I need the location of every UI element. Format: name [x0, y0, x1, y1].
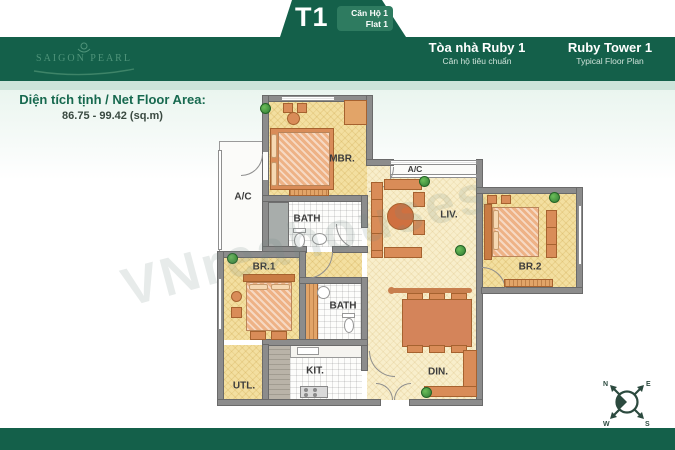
window	[218, 278, 222, 330]
br2-mattress	[492, 207, 539, 257]
wall	[218, 400, 380, 405]
balcony-door-opening	[263, 152, 268, 180]
bath2-sink	[317, 286, 330, 299]
liv-round-table	[387, 203, 414, 230]
toilet-bowl	[344, 318, 354, 333]
liv-sofa-top	[384, 179, 422, 190]
br1-pillow	[249, 284, 268, 290]
room-label-din: DIN.	[428, 367, 448, 378]
footer-bar	[0, 428, 675, 450]
din-table	[402, 299, 472, 347]
br1-side-chair	[231, 307, 242, 318]
building-title-en-text: Ruby Tower 1	[537, 40, 675, 55]
kitchen-gray-floor	[268, 345, 290, 400]
liv-sofa-left	[371, 182, 383, 258]
window	[390, 174, 477, 178]
window	[218, 150, 222, 250]
compass-w: W	[603, 421, 610, 426]
unit-name-vi: Căn Hộ 1	[337, 8, 388, 19]
room-label-utl: UTL.	[233, 381, 255, 392]
wall	[362, 196, 367, 227]
net-floor-area-value: 86.75 - 99.42 (sq.m)	[10, 110, 215, 122]
wall	[263, 196, 367, 201]
plant-icon	[419, 176, 430, 187]
wall	[263, 345, 268, 405]
window	[281, 96, 335, 101]
room-label-bath2: BATH	[329, 301, 356, 312]
room-label-liv: LIV.	[440, 210, 457, 221]
stove-burners	[304, 388, 308, 392]
room-label-mbr: MBR.	[329, 154, 355, 165]
mbr-pillow	[271, 162, 277, 186]
liv-sofa-bottom	[384, 247, 422, 258]
unit-name-pill: Căn Hộ 1 Flat 1	[337, 6, 393, 31]
compass-s: S	[645, 421, 650, 426]
mbr-desk	[344, 100, 367, 125]
kitchen-sink	[297, 347, 319, 355]
wall	[477, 188, 582, 193]
building-title-vi-text: Tòa nhà Ruby 1	[402, 40, 552, 55]
wall	[300, 278, 367, 283]
plant-icon	[549, 192, 560, 203]
br2-headboard	[484, 204, 492, 260]
floor-plan-page: T1 Căn Hộ 1 Flat 1 SAIGON PEARL Tòa nhà …	[0, 0, 675, 450]
plant-icon	[455, 245, 466, 256]
net-floor-area-label: Diện tích tịnh / Net Floor Area:	[10, 92, 215, 107]
plant-icon	[260, 103, 271, 114]
mbr-side-table	[287, 112, 300, 125]
br2-pillow	[493, 231, 499, 250]
mbr-mattress	[278, 132, 330, 186]
din-chair	[429, 345, 445, 353]
saigon-pearl-logo: SAIGON PEARL	[26, 41, 142, 79]
wall	[362, 278, 367, 370]
br2-pillow	[493, 210, 499, 229]
mbr-chair	[297, 103, 307, 113]
br2-chair	[501, 195, 511, 204]
din-chair	[407, 345, 423, 353]
din-console-knob	[388, 287, 395, 294]
liv-armchair	[413, 220, 425, 235]
shower-stall	[268, 202, 289, 247]
br1-ottoman	[271, 331, 287, 340]
plant-icon	[421, 387, 432, 398]
wall	[263, 340, 367, 345]
room-label-bath1: BATH	[293, 214, 320, 225]
wall	[300, 252, 305, 345]
unit-code: T1	[295, 2, 329, 33]
toilet-bowl	[294, 233, 305, 248]
wall	[367, 96, 372, 165]
building-title-vi: Tòa nhà Ruby 1 Căn hộ tiêu chuẩn	[402, 40, 552, 66]
br2-chair	[487, 195, 497, 204]
net-floor-area: Diện tích tịnh / Net Floor Area: 86.75 -…	[10, 92, 215, 122]
building-subtitle-en-text: Typical Floor Plan	[537, 56, 675, 66]
liv-armchair	[413, 192, 425, 207]
building-title-en: Ruby Tower 1 Typical Floor Plan	[537, 40, 675, 66]
mbr-dresser	[289, 189, 329, 196]
br1-headboard	[243, 274, 295, 282]
room-label-ac-left: A/C	[234, 192, 251, 203]
pearl-swoosh-icon	[26, 41, 142, 79]
unit-name-en: Flat 1	[337, 19, 388, 30]
room-label-ac-top: A/C	[408, 164, 423, 174]
wall	[410, 400, 482, 405]
br1-side-chair	[231, 291, 242, 302]
window	[578, 205, 582, 265]
compass-e: E	[646, 381, 651, 388]
bath1-sink	[312, 233, 327, 245]
room-label-br2: BR.2	[519, 262, 542, 273]
br1-ottoman	[250, 331, 266, 340]
room-label-br1: BR.1	[253, 262, 276, 273]
compass-rose-icon: N E W S	[603, 378, 651, 426]
br2-bench	[546, 210, 557, 258]
din-bench-vertical	[463, 350, 477, 388]
building-subtitle-vi-text: Căn hộ tiêu chuẩn	[402, 56, 552, 66]
room-label-kit: KIT.	[306, 366, 324, 377]
utl-floor	[223, 345, 263, 400]
br2-dresser	[504, 279, 553, 287]
mint-strip	[0, 81, 675, 90]
window	[390, 160, 477, 165]
mbr-pillow	[271, 134, 277, 158]
compass-n: N	[603, 381, 608, 388]
plant-icon	[227, 253, 238, 264]
br1-pillow	[271, 284, 290, 290]
